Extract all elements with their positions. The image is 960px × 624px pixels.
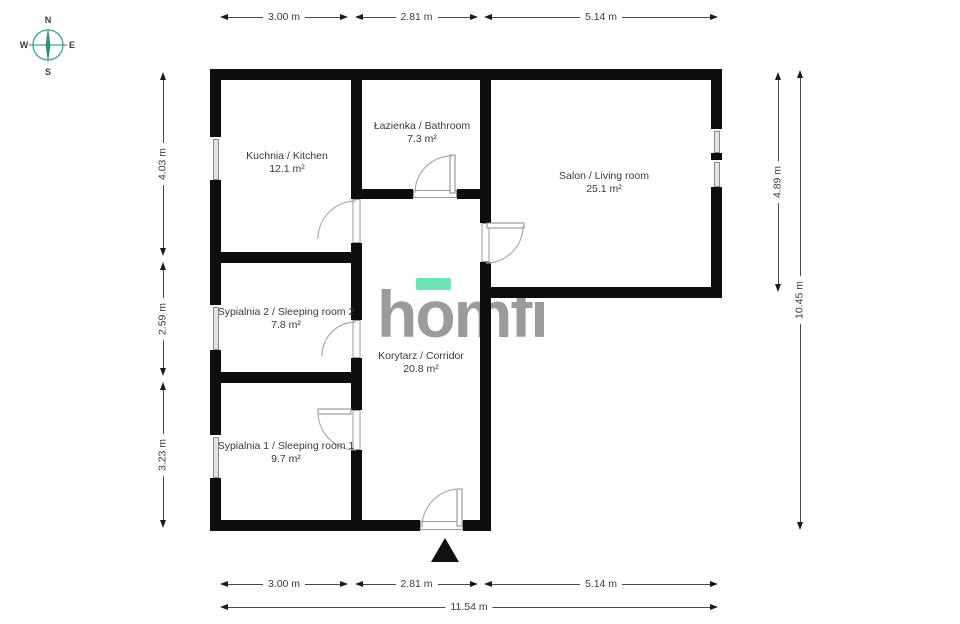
room-area: 9.7 m² (218, 453, 355, 466)
room-name: Łazienka / Bathroom (374, 120, 470, 133)
room-label-sleeping-room-1: Sypialnia 1 / Sleeping room 1 9.7 m² (218, 440, 355, 466)
room-name: Sypialnia 1 / Sleeping room 1 (218, 440, 355, 453)
entrance-arrow-icon (431, 538, 459, 562)
door-swing-icon-kitchen (318, 200, 360, 243)
room-area: 7.3 m² (374, 133, 470, 146)
room-area: 20.8 m² (378, 363, 464, 376)
room-area: 7.8 m² (218, 319, 355, 332)
room-label-kitchen: Kuchnia / Kitchen 12.1 m² (246, 150, 328, 176)
room-name: Salon / Living room (559, 170, 649, 183)
room-name: Sypialnia 2 / Sleeping room 2 (218, 306, 355, 319)
door-swing-icon-entrance (421, 489, 463, 530)
room-name: Kuchnia / Kitchen (246, 150, 328, 163)
room-area: 25.1 m² (559, 183, 649, 196)
room-label-sleeping-room-2: Sypialnia 2 / Sleeping room 2 7.8 m² (218, 306, 355, 332)
room-area: 12.1 m² (246, 163, 328, 176)
doors-overlay (0, 0, 960, 624)
floor-plan: N S E W homfi (0, 0, 960, 624)
door-swing-icon-living-room (482, 223, 524, 263)
room-name: Korytarz / Corridor (378, 350, 464, 363)
room-label-bathroom: Łazienka / Bathroom 7.3 m² (374, 120, 470, 146)
room-label-living-room: Salon / Living room 25.1 m² (559, 170, 649, 196)
door-swing-icon-bathroom (414, 155, 457, 198)
room-label-corridor: Korytarz / Corridor 20.8 m² (378, 350, 464, 376)
